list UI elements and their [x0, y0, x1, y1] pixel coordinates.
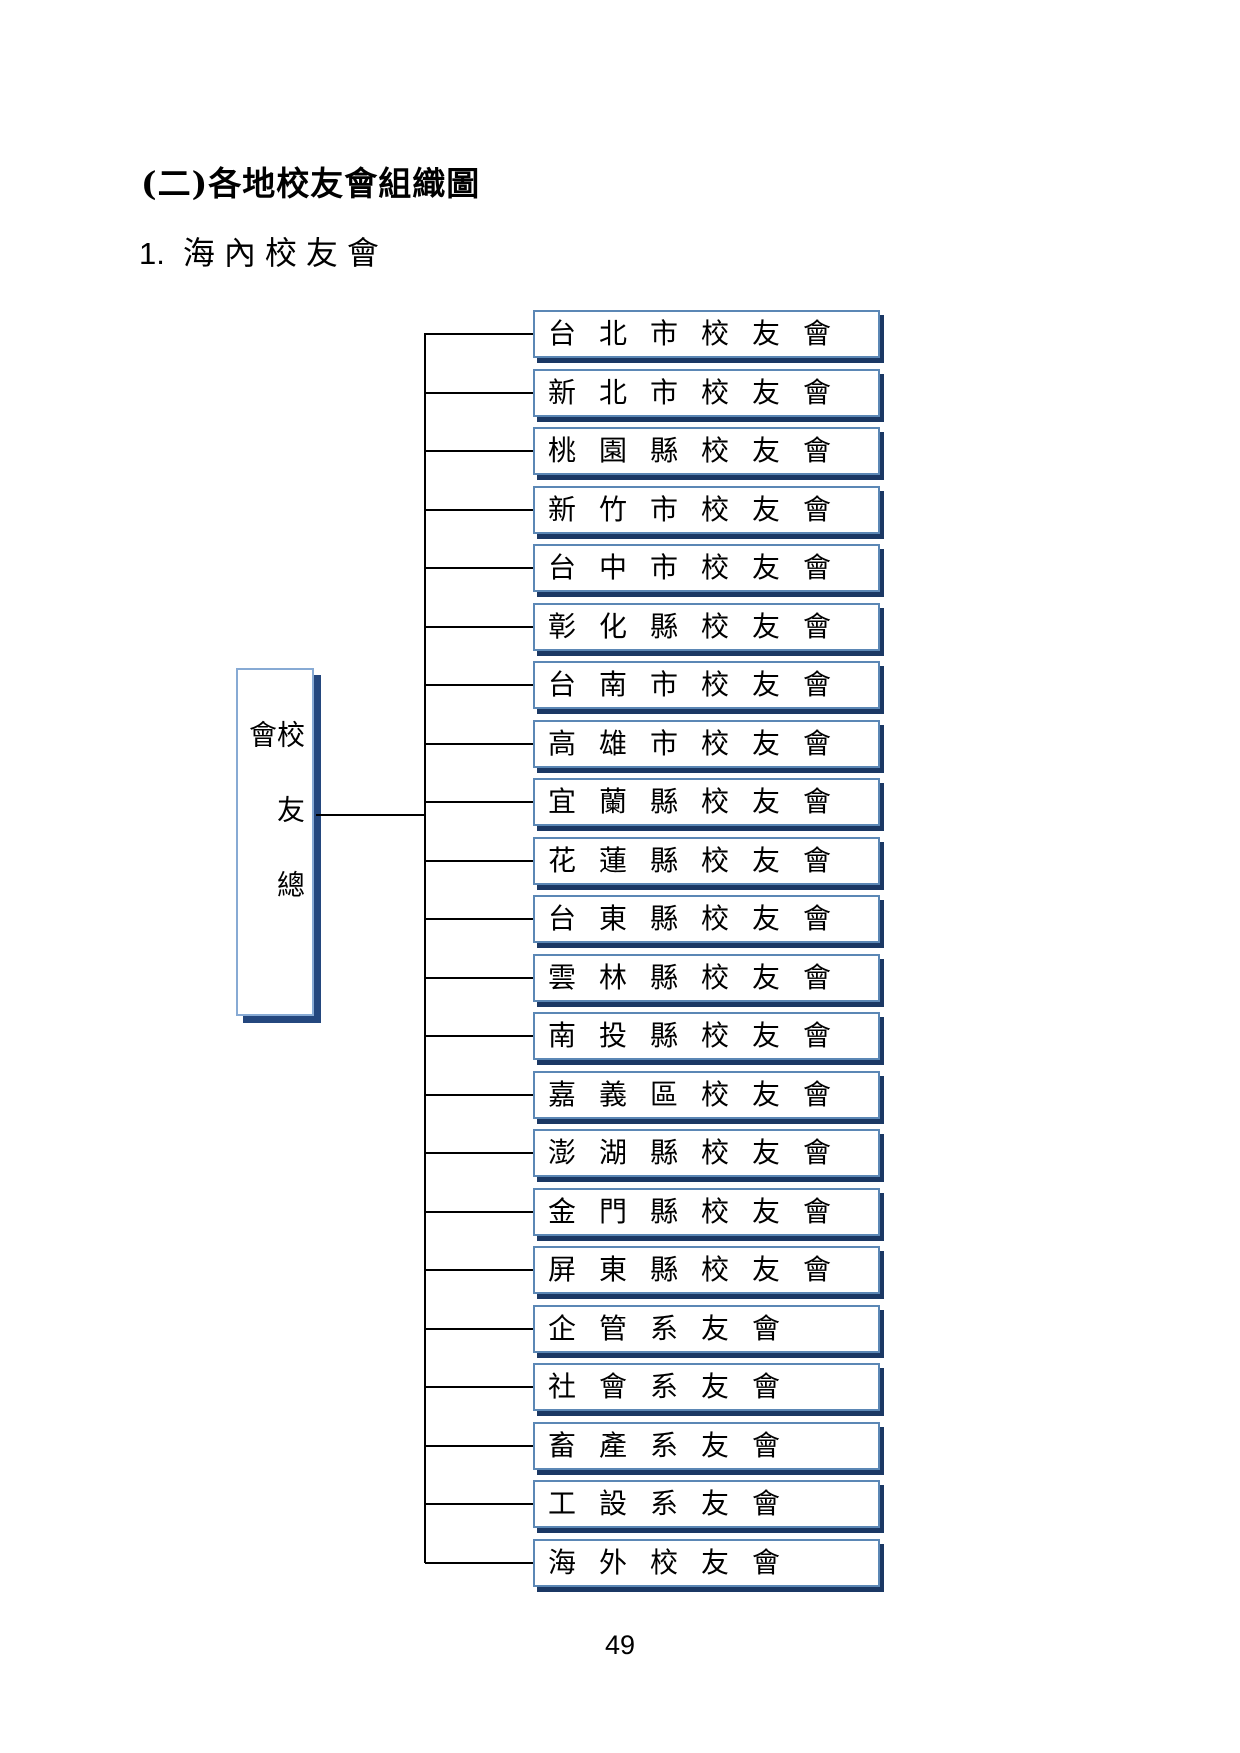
branch-connector-line [425, 1503, 533, 1505]
branch-box-label: 企管系友會 [548, 1315, 803, 1343]
branch-box: 雲林縣校友會 [533, 954, 880, 1002]
branch-row: 宜蘭縣校友會 [425, 778, 880, 826]
page-number: 49 [0, 1630, 1240, 1661]
branch-box-label: 高雄市校友會 [548, 730, 854, 758]
branch-box: 工設系友會 [533, 1480, 880, 1528]
branch-box-label: 宜蘭縣校友會 [548, 788, 854, 816]
branch-box-label: 新竹市校友會 [548, 496, 854, 524]
branch-connector-line [425, 684, 533, 686]
branch-box-label: 台東縣校友會 [548, 905, 854, 933]
branch-box-label: 海外校友會 [548, 1549, 803, 1577]
branch-row: 花蓮縣校友會 [425, 837, 880, 885]
branch-box-label: 嘉義區校友會 [548, 1081, 854, 1109]
branch-box: 海外校友會 [533, 1539, 880, 1587]
branch-box: 宜蘭縣校友會 [533, 778, 880, 826]
branch-row: 高雄市校友會 [425, 720, 880, 768]
branch-connector-line [425, 743, 533, 745]
branch-connector-line [425, 1445, 533, 1447]
branch-box: 台中市校友會 [533, 544, 880, 592]
branch-box: 社會系友會 [533, 1363, 880, 1411]
branch-row: 工設系友會 [425, 1480, 880, 1528]
branch-box-label: 金門縣校友會 [548, 1198, 854, 1226]
branch-box: 澎湖縣校友會 [533, 1129, 880, 1177]
branch-connector-line [425, 918, 533, 920]
branch-box: 花蓮縣校友會 [533, 837, 880, 885]
branch-connector-line [425, 1152, 533, 1154]
branch-box-label: 花蓮縣校友會 [548, 847, 854, 875]
branch-list: 台北市校友會 新北市校友會 桃園縣校友會 新竹市校友會 [425, 310, 880, 1587]
branch-row: 彰化縣校友會 [425, 603, 880, 651]
branch-connector-line [425, 1035, 533, 1037]
branch-box: 金門縣校友會 [533, 1188, 880, 1236]
branch-row: 企管系友會 [425, 1305, 880, 1353]
branch-box: 台北市校友會 [533, 310, 880, 358]
branch-box: 新竹市校友會 [533, 486, 880, 534]
branch-box: 台南市校友會 [533, 661, 880, 709]
branch-connector-line [425, 392, 533, 394]
branch-box-label: 屏東縣校友會 [548, 1256, 854, 1284]
branch-box: 屏東縣校友會 [533, 1246, 880, 1294]
branch-row: 金門縣校友會 [425, 1188, 880, 1236]
branch-box: 桃園縣校友會 [533, 427, 880, 475]
branch-row: 澎湖縣校友會 [425, 1129, 880, 1177]
branch-row: 雲林縣校友會 [425, 954, 880, 1002]
branch-box: 台東縣校友會 [533, 895, 880, 943]
branch-box: 新北市校友會 [533, 369, 880, 417]
branch-row: 台北市校友會 [425, 310, 880, 358]
branch-connector-line [425, 567, 533, 569]
branch-connector-line [425, 1328, 533, 1330]
branch-box-label: 彰化縣校友會 [548, 613, 854, 641]
branch-connector-line [425, 450, 533, 452]
branch-box-label: 南投縣校友會 [548, 1022, 854, 1050]
branch-box-label: 社會系友會 [548, 1373, 803, 1401]
root-box: 校友總會 [236, 668, 314, 1016]
branch-row: 台南市校友會 [425, 661, 880, 709]
branch-box-label: 桃園縣校友會 [548, 437, 854, 465]
branch-connector-line [425, 977, 533, 979]
branch-connector-line [425, 801, 533, 803]
branch-box: 企管系友會 [533, 1305, 880, 1353]
branch-connector-line [425, 333, 533, 335]
branch-box-label: 畜產系友會 [548, 1432, 803, 1460]
branch-connector-line [425, 1211, 533, 1213]
branch-connector-line [425, 1562, 533, 1564]
branch-box: 彰化縣校友會 [533, 603, 880, 651]
branch-row: 嘉義區校友會 [425, 1071, 880, 1119]
branch-row: 畜產系友會 [425, 1422, 880, 1470]
branch-box: 南投縣校友會 [533, 1012, 880, 1060]
branch-row: 新竹市校友會 [425, 486, 880, 534]
branch-row: 社會系友會 [425, 1363, 880, 1411]
root-box-label: 校友總會 [247, 670, 303, 1014]
root-connector-line [316, 814, 425, 816]
branch-box-label: 新北市校友會 [548, 379, 854, 407]
branch-connector-line [425, 509, 533, 511]
branch-row: 南投縣校友會 [425, 1012, 880, 1060]
branch-box-label: 澎湖縣校友會 [548, 1139, 854, 1167]
branch-connector-line [425, 626, 533, 628]
branch-box-label: 雲林縣校友會 [548, 964, 854, 992]
branch-box: 高雄市校友會 [533, 720, 880, 768]
branch-box-label: 台南市校友會 [548, 671, 854, 699]
branch-row: 台中市校友會 [425, 544, 880, 592]
branch-connector-line [425, 1094, 533, 1096]
branch-row: 新北市校友會 [425, 369, 880, 417]
branch-connector-line [425, 1386, 533, 1388]
branch-box: 嘉義區校友會 [533, 1071, 880, 1119]
branch-connector-line [425, 860, 533, 862]
branch-row: 台東縣校友會 [425, 895, 880, 943]
org-chart: 校友總會 台北市校友會 新北市校友會 桃園縣校友會 [0, 0, 1240, 1753]
branch-box-label: 台中市校友會 [548, 554, 854, 582]
branch-connector-line [425, 1269, 533, 1271]
branch-row: 海外校友會 [425, 1539, 880, 1587]
branch-box-label: 台北市校友會 [548, 320, 854, 348]
branch-box: 畜產系友會 [533, 1422, 880, 1470]
branch-row: 屏東縣校友會 [425, 1246, 880, 1294]
branch-box-label: 工設系友會 [548, 1490, 803, 1518]
branch-row: 桃園縣校友會 [425, 427, 880, 475]
